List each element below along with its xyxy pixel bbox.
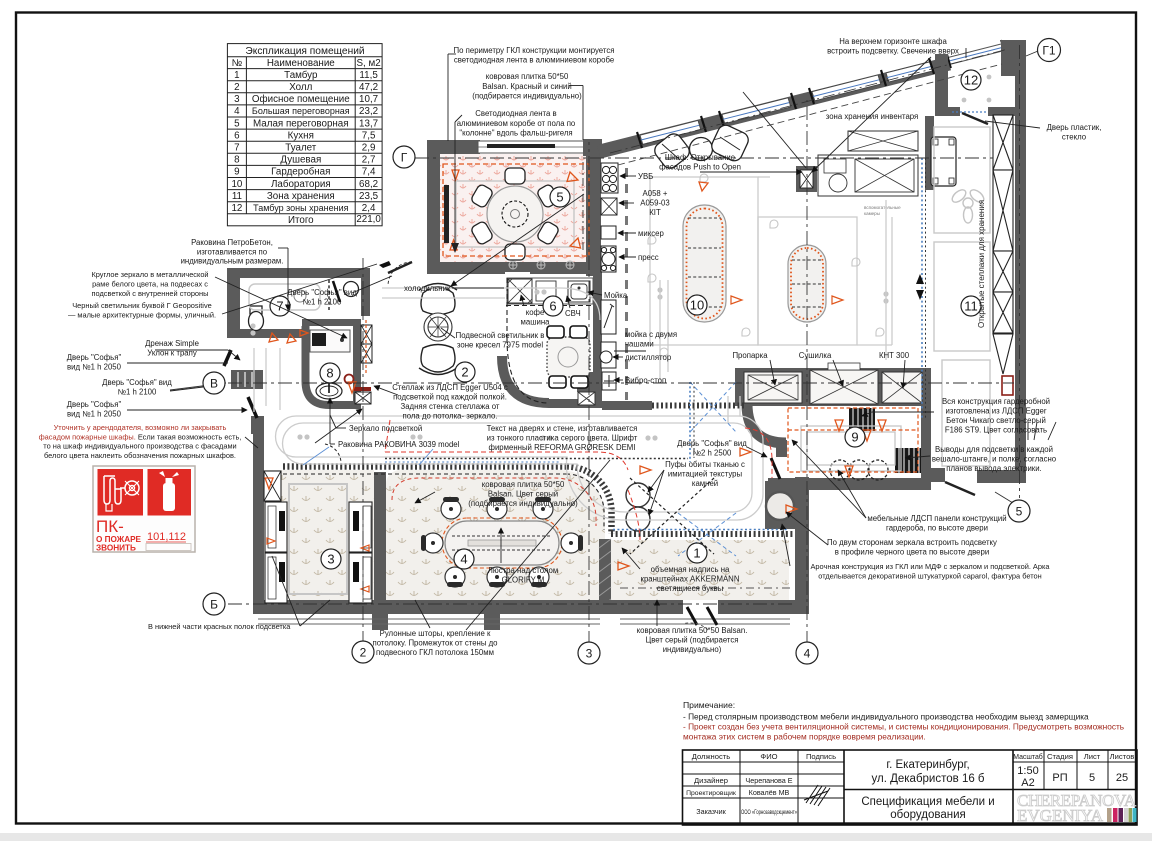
svg-text:23,2: 23,2 <box>359 106 378 117</box>
svg-text:Тамбур зоны хранения: Тамбур зоны хранения <box>253 203 349 213</box>
svg-text:7,4: 7,4 <box>362 167 376 178</box>
svg-text:S, м2: S, м2 <box>357 58 381 69</box>
svg-text:Круглое зеркало в металлическо: Круглое зеркало в металлическойраме бело… <box>91 270 208 298</box>
svg-text:Зеркало подсветкой: Зеркало подсветкой <box>349 424 422 433</box>
svg-text:4: 4 <box>234 106 240 117</box>
svg-text:4: 4 <box>460 552 467 567</box>
svg-text:Зона хранения: Зона хранения <box>267 191 335 202</box>
svg-text:2,7: 2,7 <box>362 155 376 166</box>
svg-text:7: 7 <box>234 143 239 154</box>
svg-text:зона хранения инвентаря: зона хранения инвентаря <box>826 112 919 121</box>
svg-text:Малая переговорная: Малая переговорная <box>253 118 349 129</box>
svg-text:2: 2 <box>461 365 468 380</box>
svg-text:ФИО: ФИО <box>760 752 777 761</box>
svg-text:11: 11 <box>232 191 242 202</box>
svg-text:Стеллаж из ЛДСП Egger U504 спо: Стеллаж из ЛДСП Egger U504 сподсветкой п… <box>392 383 508 421</box>
svg-text:5: 5 <box>1089 772 1095 784</box>
svg-text:2: 2 <box>360 646 367 660</box>
svg-text:ковровая плитка 50*50Balsan. К: ковровая плитка 50*50Balsan. Красный и с… <box>472 72 582 101</box>
svg-text:Стадия: Стадия <box>1047 752 1073 761</box>
svg-text:Спецификация мебели и: Спецификация мебели и <box>861 796 994 808</box>
svg-text:221,0: 221,0 <box>356 214 381 225</box>
svg-text:3: 3 <box>327 552 334 567</box>
svg-text:101,112: 101,112 <box>147 531 186 543</box>
svg-text:10,7: 10,7 <box>359 94 378 105</box>
svg-text:12: 12 <box>231 203 242 214</box>
svg-text:1:50: 1:50 <box>1017 765 1038 777</box>
svg-text:По периметру ГКЛ конструкции м: По периметру ГКЛ конструкции монтируется… <box>454 46 615 65</box>
svg-text:Масштаб: Масштаб <box>1013 753 1043 761</box>
svg-text:миксер: миксер <box>638 229 664 238</box>
svg-text:5: 5 <box>1016 505 1023 519</box>
svg-text:4: 4 <box>804 647 811 661</box>
svg-text:Мойка: Мойка <box>604 291 628 300</box>
svg-text:Рулонные шторы, крепление кпот: Рулонные шторы, крепление кпотолоку. Про… <box>372 629 498 657</box>
svg-text:№: № <box>232 58 243 69</box>
svg-text:Лист: Лист <box>1084 752 1101 761</box>
svg-text:25: 25 <box>1116 772 1128 784</box>
svg-text:5: 5 <box>234 118 240 129</box>
svg-text:Кухня: Кухня <box>288 130 314 141</box>
svg-text:Вибро-стоп: Вибро-стоп <box>625 376 666 385</box>
svg-text:Выводы для подсветки в каждойв: Выводы для подсветки в каждойвешало-штан… <box>932 445 1057 473</box>
svg-text:Сушилка: Сушилка <box>799 351 832 360</box>
svg-text:5: 5 <box>556 190 563 205</box>
svg-text:13,7: 13,7 <box>359 118 378 129</box>
svg-text:вспомогательные: вспомогательные <box>864 205 901 210</box>
svg-text:Туалет: Туалет <box>285 143 317 154</box>
svg-text:А2: А2 <box>1021 777 1034 789</box>
svg-text:холодильник: холодильник <box>404 284 451 293</box>
svg-text:пресс: пресс <box>638 253 659 262</box>
svg-text:Лаборатория: Лаборатория <box>271 179 331 190</box>
svg-text:7,5: 7,5 <box>362 130 376 141</box>
svg-text:Г: Г <box>401 151 408 165</box>
svg-text:КНТ 300: КНТ 300 <box>879 351 910 360</box>
svg-text:ПК-: ПК- <box>96 517 124 536</box>
svg-text:2,9: 2,9 <box>362 143 376 154</box>
svg-text:Проектировщик: Проектировщик <box>686 790 736 797</box>
svg-text:8: 8 <box>234 155 240 166</box>
svg-text:Холл: Холл <box>289 82 312 93</box>
svg-text:Ковалёв МВ: Ковалёв МВ <box>749 788 790 797</box>
svg-text:Открытые стеллажи для хранения: Открытые стеллажи для хранения <box>977 200 986 328</box>
svg-text:камеры: камеры <box>864 211 880 216</box>
svg-text:10: 10 <box>690 298 704 313</box>
svg-text:Итого: Итого <box>288 215 314 226</box>
svg-text:6: 6 <box>234 130 240 141</box>
svg-text:3: 3 <box>586 647 593 661</box>
svg-text:Черепанова Е: Черепанова Е <box>745 776 792 785</box>
svg-text:Арочная конструкция из ГКЛ или: Арочная конструкция из ГКЛ или МДФ с зер… <box>811 562 1051 580</box>
svg-text:Подпись: Подпись <box>806 752 836 761</box>
svg-text:Экспликация помещений: Экспликация помещений <box>245 46 364 57</box>
svg-text:2,4: 2,4 <box>362 203 376 214</box>
svg-text:8: 8 <box>326 366 333 381</box>
svg-text:11,5: 11,5 <box>359 70 378 81</box>
svg-text:Большая переговорная: Большая переговорная <box>252 106 350 116</box>
svg-text:Г1: Г1 <box>1042 44 1055 58</box>
svg-text:В нижней части красных полок п: В нижней части красных полок подсветка <box>148 622 291 631</box>
svg-text:Дизайнер: Дизайнер <box>694 776 728 785</box>
svg-text:47,2: 47,2 <box>359 82 378 93</box>
svg-text:23,5: 23,5 <box>359 191 379 202</box>
svg-text:Душевая: Душевая <box>280 155 321 166</box>
svg-text:Вся конструкция гардеробнойизг: Вся конструкция гардеробнойизготовлена и… <box>942 397 1050 435</box>
svg-text:- Проект создан без учета вент: - Проект создан без учета вентиляционной… <box>683 722 1124 732</box>
svg-text:1: 1 <box>693 546 700 561</box>
svg-text:В: В <box>210 377 218 391</box>
svg-text:дистиллятор: дистиллятор <box>625 353 672 362</box>
svg-text:Наименование: Наименование <box>267 58 335 69</box>
svg-text:Пропарка: Пропарка <box>732 351 768 360</box>
svg-text:оборудования: оборудования <box>890 809 966 821</box>
svg-text:10: 10 <box>231 179 242 190</box>
svg-text:РП: РП <box>1052 772 1067 784</box>
svg-text:- Перед столярным производство: - Перед столярным производством мебели и… <box>683 712 1089 722</box>
svg-text:мебельные ЛДСП панели конструк: мебельные ЛДСП панели конструкцийгардеро… <box>867 514 1006 533</box>
svg-text:68,2: 68,2 <box>359 179 378 190</box>
svg-text:1: 1 <box>234 70 239 81</box>
svg-text:Заказчик: Заказчик <box>696 807 726 816</box>
svg-text:Уточнить у арендодателя, возмо: Уточнить у арендодателя, возможно ли зак… <box>39 423 242 460</box>
svg-text:3: 3 <box>234 94 240 105</box>
svg-text:9: 9 <box>851 430 858 445</box>
svg-text:монтажа этих систем в рабочем: монтажа этих систем в рабочем порядке во… <box>683 732 926 742</box>
svg-text:Дверь "Софья"вид №1 h 2050: Дверь "Софья"вид №1 h 2050 <box>67 400 122 419</box>
svg-text:Черный светильник буквой Г Geo: Черный светильник буквой Г Geopositive— … <box>68 301 216 319</box>
svg-text:г. Екатеринбург,: г. Екатеринбург, <box>886 759 969 771</box>
svg-text:По двум сторонам зеркала встро: По двум сторонам зеркала встроить подсве… <box>827 538 997 557</box>
svg-text:УВБ: УВБ <box>638 172 653 181</box>
svg-text:6: 6 <box>549 299 556 314</box>
svg-text:На верхнем горизонте шкафавстр: На верхнем горизонте шкафавстроить подсв… <box>827 37 959 56</box>
svg-text:9: 9 <box>234 167 239 178</box>
svg-text:12: 12 <box>964 73 978 88</box>
svg-text:Офисное помещение: Офисное помещение <box>252 94 350 105</box>
svg-text:11: 11 <box>964 299 978 314</box>
svg-text:Гардеробная: Гардеробная <box>271 167 330 178</box>
svg-text:СВЧ: СВЧ <box>565 309 581 318</box>
svg-text:Раковина РАКОВИНА 3039 model: Раковина РАКОВИНА 3039 model <box>338 440 460 449</box>
svg-text:Примечание:: Примечание: <box>683 700 735 710</box>
svg-text:ЗВОНИТЬ: ЗВОНИТЬ <box>96 544 136 553</box>
svg-text:Б: Б <box>210 598 218 612</box>
svg-text:Дренаж SimpleУклон к трапу: Дренаж SimpleУклон к трапу <box>145 339 199 358</box>
svg-text:Шкаф. Открываниефасадов Push t: Шкаф. Открываниефасадов Push to Open <box>659 153 741 172</box>
svg-text:ООО «Горнозаводскцемент»: ООО «Горнозаводскцемент» <box>741 809 797 816</box>
svg-text:Дверь "Софья"вид №1 h 2050: Дверь "Софья"вид №1 h 2050 <box>67 353 122 372</box>
svg-text:Тамбур: Тамбур <box>284 70 318 81</box>
svg-text:Должность: Должность <box>692 752 730 761</box>
svg-text:ул. Декабристов 16 б: ул. Декабристов 16 б <box>871 773 984 785</box>
svg-text:EVGENIYA: EVGENIYA <box>1017 806 1104 825</box>
svg-text:2: 2 <box>234 82 239 93</box>
svg-text:Подвесной светильник взоне кре: Подвесной светильник взоне кресел 7975 m… <box>456 331 545 350</box>
svg-text:Текст на дверях и стене, изгот: Текст на дверях и стене, изготавливается… <box>487 424 638 452</box>
svg-text:Листов: Листов <box>1110 752 1135 761</box>
